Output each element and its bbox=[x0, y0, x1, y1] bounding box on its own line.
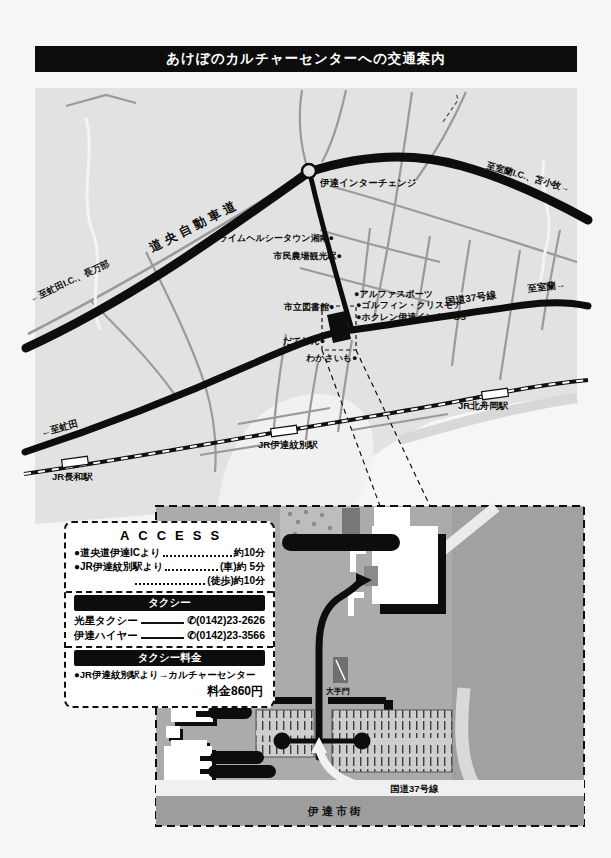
taxi-phone: (0142)23-3566 bbox=[196, 628, 265, 643]
main-map: 道央自動車道 伊達インターチェンジ 至室蘭I.C.、苫小牧→ ←至虻田I.C.、… bbox=[24, 88, 588, 524]
access-row-label: ●JR伊達紋別駅より bbox=[74, 560, 163, 574]
svg-text:Bocca: Bocca bbox=[224, 753, 250, 763]
inset-dark-building bbox=[342, 508, 360, 534]
svg-text:びっくりドンキー: びっくりドンキー bbox=[208, 768, 274, 777]
label-inset-route37: 国道37号線 bbox=[390, 783, 439, 794]
rule-leader bbox=[141, 622, 185, 624]
label-station-nagawa: JR長和駅 bbox=[52, 471, 93, 482]
phone-icon: ✆ bbox=[187, 613, 196, 628]
rule-leader bbox=[141, 637, 185, 639]
fare-route: ●JR伊達紋別駅より→カルチャーセンター bbox=[74, 669, 265, 682]
svg-text:カルチャーセンター: カルチャーセンター bbox=[293, 537, 389, 548]
label-otemon: 大手門 bbox=[326, 687, 350, 696]
taxi-header: タクシー bbox=[74, 595, 265, 611]
label-golfin-chrismore: ●ゴルフィン・クリスモア bbox=[356, 300, 463, 310]
restaurant-building bbox=[164, 746, 216, 784]
access-row-station-car: ●JR伊達紋別駅より (車)約 5分 bbox=[74, 560, 265, 574]
dashed-divider bbox=[66, 646, 273, 648]
parking-icon-left: P bbox=[274, 733, 291, 750]
taxi-row-kosei: 光星タクシー ✆ (0142)23-2626 bbox=[74, 613, 265, 628]
label-hokuren-gs: ●ホクレン伊達インターGS bbox=[356, 312, 466, 322]
bikkuri-donkey-bubble: びっくりドンキー bbox=[200, 765, 276, 778]
label-prime-healthy-town: プライムヘルシータウン湘南● bbox=[209, 233, 334, 243]
label-city-area: 伊達市街 bbox=[307, 805, 364, 817]
inset-white-building-top bbox=[374, 507, 410, 528]
access-row-station-walk: (徒歩)約10分 bbox=[74, 574, 265, 588]
page: あけぼのカルチャーセンターへの交通案内 bbox=[0, 0, 611, 858]
svg-text:P: P bbox=[358, 735, 365, 747]
interchange-icon bbox=[302, 164, 316, 178]
label-wakasaimo: わかさいも● bbox=[305, 353, 358, 363]
access-row-value: 約10分 bbox=[234, 546, 265, 560]
access-row-value: (徒歩)約10分 bbox=[207, 574, 265, 588]
access-panel: ACCESS ●道央道伊達ICより 約10分 ●JR伊達紋別駅より (車)約 5… bbox=[64, 521, 275, 708]
title-banner: あけぼのカルチャーセンターへの交通案内 bbox=[35, 46, 577, 72]
label-library: 市立図書館● bbox=[283, 302, 334, 312]
svg-text:P: P bbox=[278, 735, 285, 747]
parking-icon-right: P bbox=[354, 733, 371, 750]
inset-route37-road bbox=[156, 780, 584, 796]
dashed-divider bbox=[66, 591, 273, 593]
dotted-leader bbox=[165, 569, 218, 571]
label-shimin-station: 市民農場観光駅● bbox=[273, 251, 342, 261]
label-station-kita-funaoka: JR北舟岡駅 bbox=[458, 400, 509, 411]
map-canvas: 道央自動車道 伊達インターチェンジ 至室蘭I.C.、苫小牧→ ←至虻田I.C.、… bbox=[0, 0, 611, 858]
access-row-value: (車)約 5分 bbox=[220, 560, 265, 574]
inset-city-band bbox=[156, 796, 584, 825]
taxi-fare-header: タクシー料金 bbox=[74, 650, 265, 666]
culture-center-bubble: カルチャーセンター bbox=[282, 534, 400, 551]
access-row-expressway: ●道央道伊達ICより 約10分 bbox=[74, 546, 265, 560]
inset-right-block bbox=[452, 507, 583, 781]
label-station-date-mombetsu: JR伊達紋別駅 bbox=[258, 439, 318, 450]
access-title: ACCESS bbox=[74, 528, 265, 543]
access-row-label: ●道央道伊達ICより bbox=[74, 546, 161, 560]
taxi-phone: (0142)23-2626 bbox=[196, 613, 265, 628]
taxi-row-date-hire: 伊達ハイヤー ✆ (0142)23-3566 bbox=[74, 628, 265, 643]
label-alpha-sports: ●アルファスポーツ bbox=[354, 289, 433, 299]
label-interchange: 伊達インターチェンジ bbox=[319, 177, 417, 188]
dotted-leader bbox=[135, 583, 205, 585]
page-title: あけぼのカルチャーセンターへの交通案内 bbox=[166, 50, 446, 68]
phone-icon: ✆ bbox=[187, 628, 196, 643]
dotted-leader bbox=[163, 555, 232, 557]
label-dateshin: だてしん● bbox=[283, 336, 325, 346]
taxi-name: 光星タクシー bbox=[74, 613, 138, 628]
fare-value: 料金860円 bbox=[74, 683, 263, 700]
taxi-name: 伊達ハイヤー bbox=[74, 628, 138, 643]
svg-text:市役所: 市役所 bbox=[216, 707, 243, 717]
